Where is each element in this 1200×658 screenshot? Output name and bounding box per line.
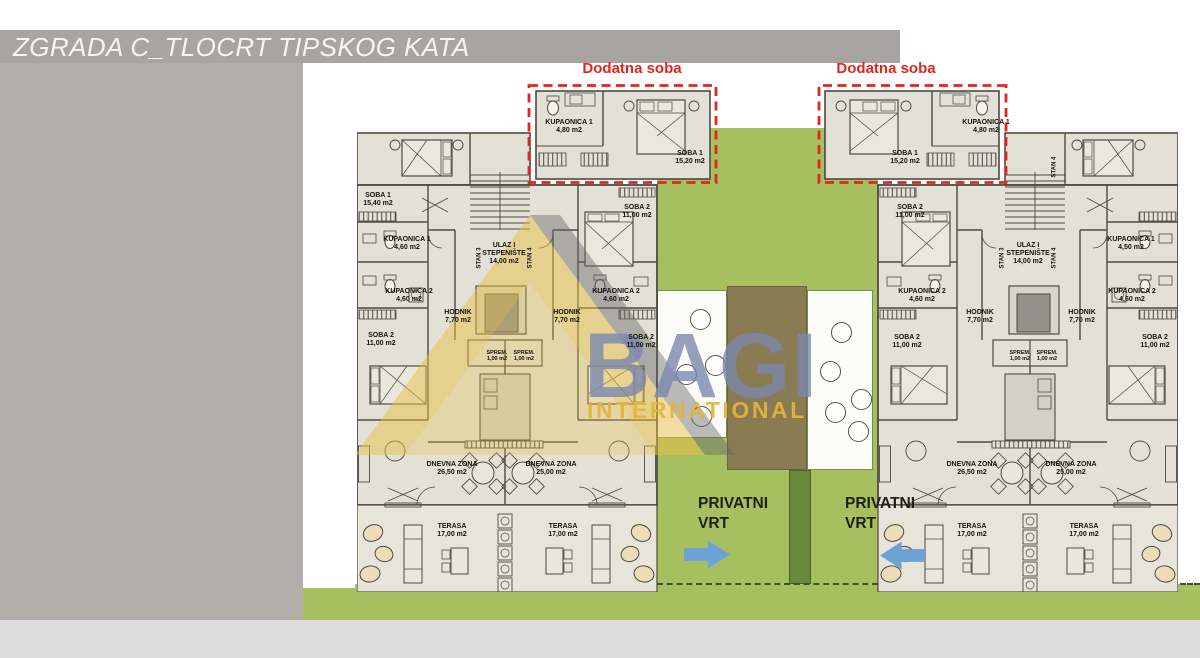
label-dodatna-soba-right: Dodatna soba — [836, 60, 935, 77]
label-dodatna-soba-left: Dodatna soba — [582, 60, 681, 77]
paved-corner — [303, 554, 355, 588]
bottom-strip — [0, 620, 1200, 658]
side-panel — [0, 63, 303, 620]
privatni-line1: PRIVATNI — [698, 494, 768, 514]
left-building-plan — [357, 84, 718, 592]
label-privatni-vrt-right: PRIVATNI VRT — [845, 494, 915, 534]
floorplan-canvas: ZGRADA C_TLOCRT TIPSKOG KATA — [0, 0, 1200, 658]
page-title: ZGRADA C_TLOCRT TIPSKOG KATA — [0, 30, 900, 64]
privatni-line1: PRIVATNI — [845, 494, 915, 514]
privatni-line2: VRT — [698, 514, 768, 534]
label-privatni-vrt-left: PRIVATNI VRT — [698, 494, 768, 534]
garden-path — [727, 286, 807, 470]
privatni-line2: VRT — [845, 514, 915, 534]
title-bar: ZGRADA C_TLOCRT TIPSKOG KATA — [0, 30, 900, 63]
plot-boundary-dashed — [1180, 583, 1200, 585]
hedge-strip — [789, 470, 811, 584]
